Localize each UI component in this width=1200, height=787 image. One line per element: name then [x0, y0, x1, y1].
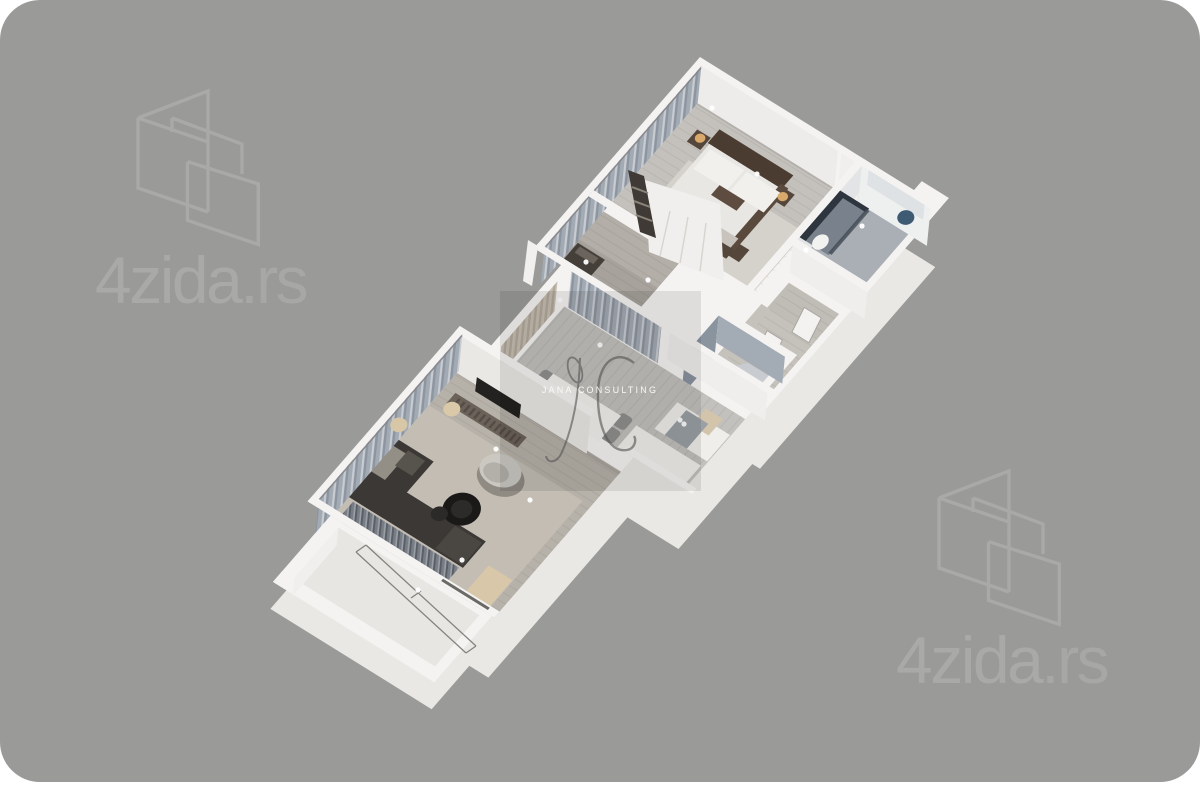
svg-text:4zida.rs: 4zida.rs	[896, 623, 1108, 697]
svg-text:JANA CONSULTING: JANA CONSULTING	[542, 385, 658, 395]
svg-text:4zida.rs: 4zida.rs	[95, 243, 307, 317]
